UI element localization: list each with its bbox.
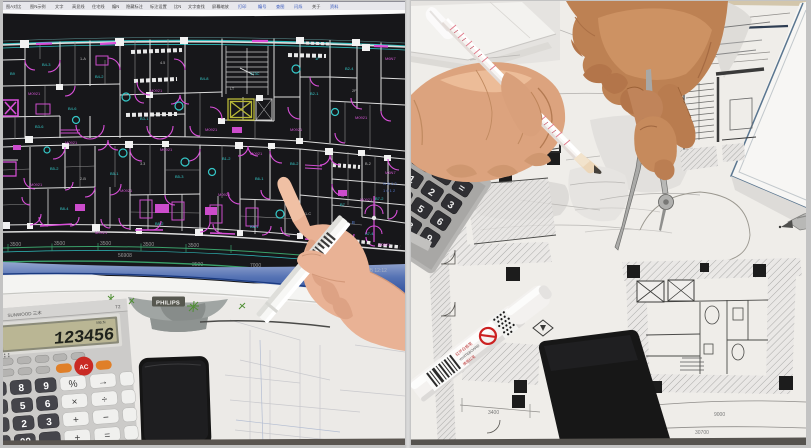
svg-text:M0921: M0921 bbox=[250, 151, 263, 156]
svg-text:文字查找: 文字查找 bbox=[188, 3, 206, 10]
svg-text:B7-2: B7-2 bbox=[375, 196, 384, 201]
svg-text:×: × bbox=[71, 397, 78, 408]
svg-text:B6-2: B6-2 bbox=[290, 161, 299, 166]
svg-text:编N: 编N bbox=[112, 3, 119, 10]
svg-text:图A对比: 图A对比 bbox=[6, 3, 21, 10]
svg-text:B4-2: B4-2 bbox=[95, 74, 104, 79]
svg-text:B: B bbox=[352, 220, 355, 225]
svg-text:B-2: B-2 bbox=[365, 162, 371, 166]
svg-text:M0921: M0921 bbox=[218, 192, 231, 197]
svg-text:B3-1: B3-1 bbox=[140, 116, 149, 121]
svg-text:+: + bbox=[73, 415, 80, 426]
svg-text:PHILIPS: PHILIPS bbox=[156, 301, 180, 307]
svg-text:T2: T2 bbox=[115, 304, 121, 309]
svg-text:文字: 文字 bbox=[55, 3, 63, 10]
svg-text:B4-3: B4-3 bbox=[42, 62, 51, 67]
svg-text:图N示例: 图N示例 bbox=[30, 3, 46, 10]
svg-text:3400: 3400 bbox=[488, 410, 499, 416]
svg-text:关于: 关于 bbox=[312, 3, 320, 10]
svg-text:编号: 编号 bbox=[258, 3, 266, 10]
svg-text:1F: 1F bbox=[315, 56, 320, 61]
svg-text:→: → bbox=[98, 376, 109, 388]
svg-text:住宅线: 住宅线 bbox=[92, 3, 105, 9]
svg-text:M0921: M0921 bbox=[160, 147, 173, 152]
svg-text:1-A: 1-A bbox=[80, 57, 86, 61]
svg-text:B5-2: B5-2 bbox=[50, 166, 59, 171]
svg-text:高显线: 高显线 bbox=[72, 3, 85, 10]
svg-text:B5-1: B5-1 bbox=[110, 171, 119, 176]
svg-text:G B 1 2: G B 1 2 bbox=[383, 181, 397, 186]
svg-text:B7: B7 bbox=[340, 202, 346, 207]
svg-text:M0921: M0921 bbox=[65, 140, 78, 145]
svg-text:M6:N: M6:N bbox=[96, 320, 106, 325]
svg-text:M0921: M0921 bbox=[290, 127, 303, 132]
svg-text:B2-4: B2-4 bbox=[345, 66, 354, 71]
svg-text:B6-1: B6-1 bbox=[255, 176, 264, 181]
svg-text:AC: AC bbox=[79, 364, 89, 372]
svg-text:B4-6: B4-6 bbox=[68, 106, 77, 111]
svg-text:M0921: M0921 bbox=[95, 230, 108, 235]
svg-text:3500: 3500 bbox=[54, 241, 65, 247]
svg-text:1-C: 1-C bbox=[305, 212, 311, 216]
svg-text:M0921: M0921 bbox=[28, 91, 41, 96]
svg-text:173C: 173C bbox=[250, 71, 260, 76]
svg-text:B8-2: B8-2 bbox=[155, 221, 164, 226]
svg-text:4.5: 4.5 bbox=[160, 61, 165, 65]
svg-text:比N: 比N bbox=[174, 3, 181, 10]
svg-text:B2-1: B2-1 bbox=[310, 91, 319, 96]
svg-text:打印: 打印 bbox=[238, 3, 246, 10]
svg-text:B3-6: B3-6 bbox=[35, 124, 44, 129]
svg-text:标注设置: 标注设置 bbox=[150, 3, 167, 10]
svg-text:资料: 资料 bbox=[330, 3, 339, 10]
svg-text:B5-3: B5-3 bbox=[175, 174, 184, 179]
svg-text:%: % bbox=[68, 379, 78, 391]
svg-text:B4-8: B4-8 bbox=[200, 76, 209, 81]
svg-text:M0921: M0921 bbox=[30, 182, 43, 187]
svg-text:M0921: M0921 bbox=[360, 197, 373, 202]
svg-text:屏幕缩放: 屏幕缩放 bbox=[212, 3, 230, 10]
svg-text:M6N7: M6N7 bbox=[385, 56, 396, 61]
svg-text:9000: 9000 bbox=[714, 412, 725, 418]
svg-text:M0921: M0921 bbox=[150, 88, 163, 93]
svg-text:M0921: M0921 bbox=[120, 188, 133, 193]
svg-text:3.3: 3.3 bbox=[140, 162, 145, 166]
svg-text:M6N7: M6N7 bbox=[385, 170, 396, 175]
svg-text:B8-1: B8-1 bbox=[250, 224, 259, 229]
svg-text:隐藏标注: 隐藏标注 bbox=[126, 3, 144, 10]
svg-text:闪烁: 闪烁 bbox=[294, 3, 302, 9]
svg-text:M0921: M0921 bbox=[378, 242, 391, 247]
svg-text:−: − bbox=[103, 412, 110, 423]
svg-text:M0921: M0921 bbox=[205, 127, 218, 132]
svg-text:B1-2: B1-2 bbox=[222, 156, 231, 161]
svg-text:30700: 30700 bbox=[695, 430, 709, 436]
svg-text:LT: LT bbox=[230, 87, 235, 91]
svg-text:1 0 1 2: 1 0 1 2 bbox=[383, 188, 396, 193]
svg-text:2-B: 2-B bbox=[80, 177, 86, 181]
svg-text:2F: 2F bbox=[352, 89, 357, 93]
svg-text:B9: B9 bbox=[10, 71, 16, 76]
svg-text:查图: 查图 bbox=[276, 3, 284, 10]
svg-text:M0921: M0921 bbox=[355, 115, 368, 120]
svg-text:B8-4: B8-4 bbox=[60, 206, 69, 211]
svg-text:56908: 56908 bbox=[118, 253, 132, 259]
